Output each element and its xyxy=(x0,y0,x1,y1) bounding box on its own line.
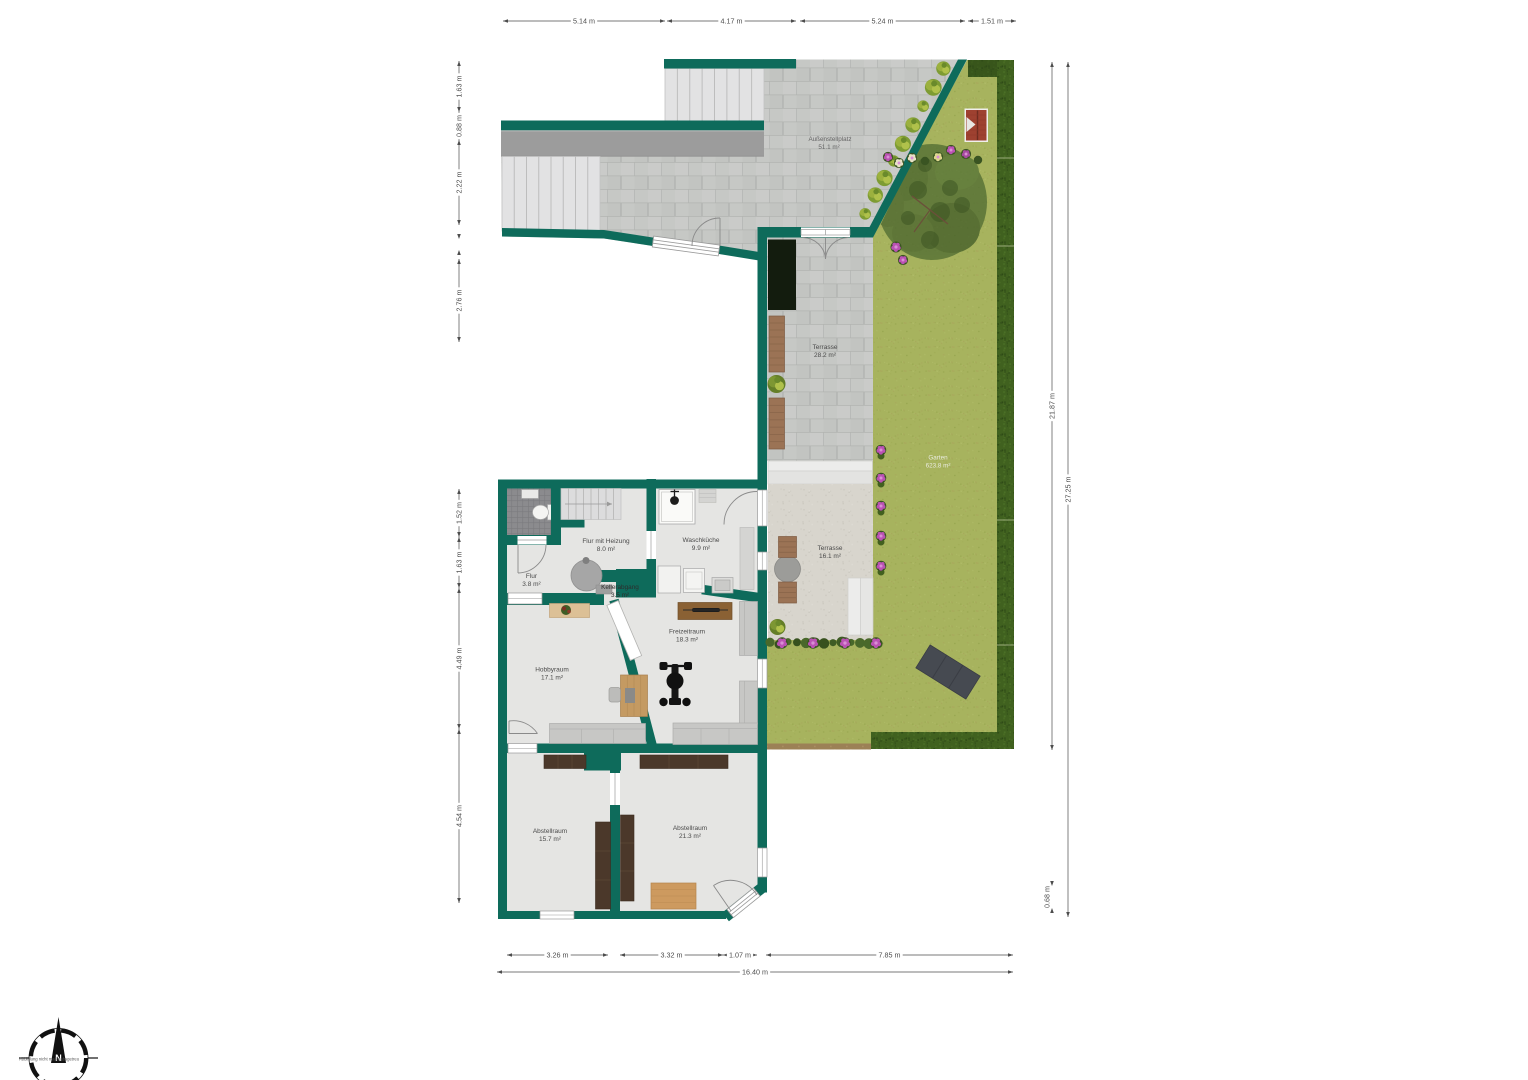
svg-text:4.49 m: 4.49 m xyxy=(454,648,463,670)
svg-text:1.63 m: 1.63 m xyxy=(454,76,463,98)
svg-text:3.8 m²: 3.8 m² xyxy=(522,581,541,588)
svg-text:51.1 m²: 51.1 m² xyxy=(818,144,839,151)
svg-text:15.7 m²: 15.7 m² xyxy=(539,836,562,843)
svg-text:16.40 m: 16.40 m xyxy=(742,967,768,976)
svg-text:Garten: Garten xyxy=(928,455,948,462)
svg-text:Flur: Flur xyxy=(526,573,538,580)
svg-text:28.2 m²: 28.2 m² xyxy=(814,352,837,359)
svg-text:17.1 m²: 17.1 m² xyxy=(541,675,564,682)
svg-text:21.87 m: 21.87 m xyxy=(1047,393,1056,419)
svg-text:0.68 m: 0.68 m xyxy=(1043,886,1052,908)
svg-text:Terrasse: Terrasse xyxy=(818,545,843,552)
svg-text:Hobbyraum: Hobbyraum xyxy=(535,667,569,674)
svg-text:21.3 m²: 21.3 m² xyxy=(679,833,702,840)
svg-text:5.14 m: 5.14 m xyxy=(573,16,595,25)
svg-text:7.85 m: 7.85 m xyxy=(879,950,901,959)
svg-text:Abbildung nicht maßstabsgetreu: Abbildung nicht maßstabsgetreu xyxy=(19,1057,80,1062)
svg-text:Abstellraum: Abstellraum xyxy=(673,825,707,832)
svg-text:4.54 m: 4.54 m xyxy=(454,805,463,827)
svg-text:Kellerabgang: Kellerabgang xyxy=(601,584,639,591)
svg-text:3.32 m: 3.32 m xyxy=(661,950,683,959)
svg-text:9.9 m²: 9.9 m² xyxy=(692,545,711,552)
svg-text:2.22 m: 2.22 m xyxy=(454,172,463,194)
svg-text:5.24 m: 5.24 m xyxy=(872,16,894,25)
svg-text:1.63 m: 1.63 m xyxy=(454,552,463,574)
svg-text:4.17 m: 4.17 m xyxy=(721,16,743,25)
svg-text:3.5 m²: 3.5 m² xyxy=(611,592,629,599)
svg-text:18.3 m²: 18.3 m² xyxy=(676,637,699,644)
svg-text:623.8 m²: 623.8 m² xyxy=(926,463,951,470)
svg-text:0.88 m: 0.88 m xyxy=(454,115,463,137)
svg-text:Flur mit Heizung: Flur mit Heizung xyxy=(582,538,630,545)
svg-text:8.0 m²: 8.0 m² xyxy=(597,546,616,553)
svg-text:1.51 m: 1.51 m xyxy=(981,16,1003,25)
svg-text:27.25 m: 27.25 m xyxy=(1063,477,1072,503)
svg-text:3.26 m: 3.26 m xyxy=(547,950,569,959)
svg-text:Freizeitraum: Freizeitraum xyxy=(669,629,705,636)
svg-text:2.76 m: 2.76 m xyxy=(454,290,463,312)
svg-text:Abstellraum: Abstellraum xyxy=(533,828,567,835)
svg-text:Waschküche: Waschküche xyxy=(683,537,720,544)
svg-text:1.52 m: 1.52 m xyxy=(454,502,463,524)
svg-text:Terrasse: Terrasse xyxy=(813,344,838,351)
svg-text:16.1 m²: 16.1 m² xyxy=(819,553,842,560)
svg-text:Außenstellplatz: Außenstellplatz xyxy=(808,136,851,143)
svg-text:1.07 m: 1.07 m xyxy=(729,950,751,959)
